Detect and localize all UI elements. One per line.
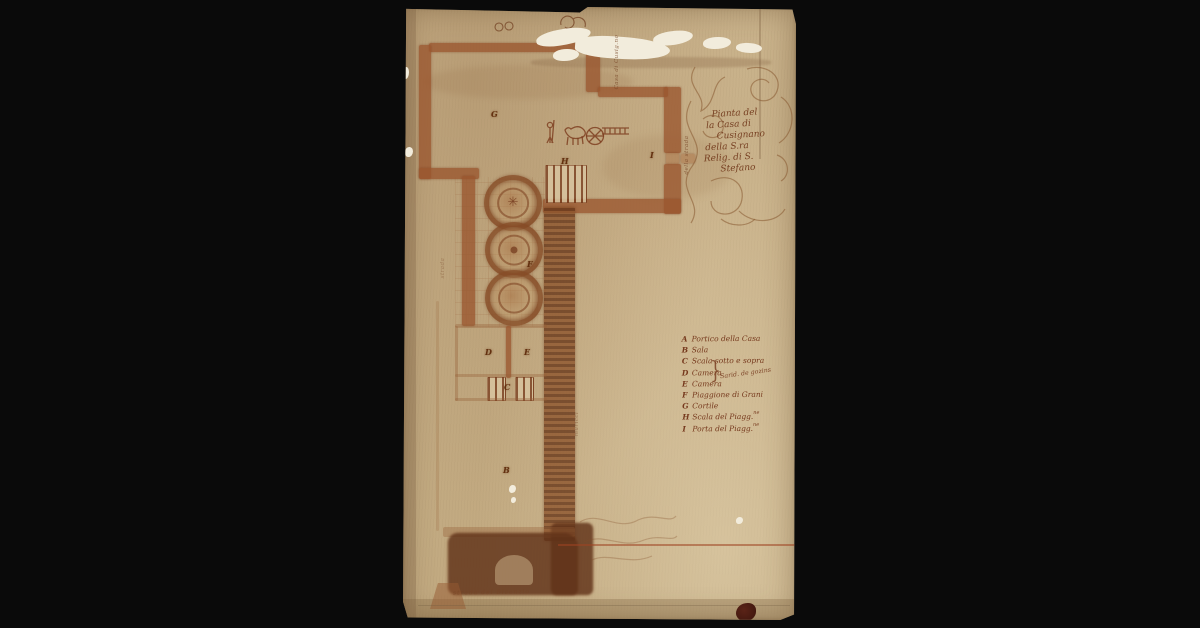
legend-text: Scala sotto e sopra (692, 355, 765, 367)
legend-letter: B (682, 345, 692, 356)
legend-letter: A (682, 333, 692, 344)
legend-letter: F (682, 389, 692, 400)
inscription-top-vertical: Casa di Cusig.no (614, 30, 620, 94)
corridor-band (544, 207, 575, 541)
legend-sup: ne (753, 411, 759, 422)
inscription-wall-vertical: della strada (684, 123, 690, 187)
inscription-corridor-vertical: muricci (574, 392, 580, 456)
damage-patch (703, 37, 731, 49)
wall-B-left (436, 301, 439, 531)
legend-text: Sala (692, 344, 709, 355)
wall-DE-divider (506, 326, 511, 378)
legend-letter: G (682, 401, 692, 412)
wall-DE-top (455, 324, 547, 328)
hub-dot (511, 247, 518, 254)
inscription-left-vertical: strada (440, 236, 446, 300)
scanned-drawing-stage: ✳ (0, 0, 1200, 628)
portico-arch (495, 555, 533, 585)
legend-text: Scala del Piagg. (692, 411, 753, 423)
plan-label-H: H (561, 156, 569, 166)
plan-label-C: C (504, 382, 510, 392)
pencil-line (418, 605, 790, 606)
legend-text: Portico della Casa (692, 333, 761, 345)
red-rule-line (558, 544, 796, 546)
wall-courtyard-left (419, 45, 431, 179)
damage-speck (509, 485, 516, 493)
plan-label-I: I (650, 150, 654, 160)
legend-sup: ne (753, 422, 759, 433)
legend-key: APortico della Casa BSala CScala sotto e… (682, 333, 797, 435)
stain-left-band (403, 7, 416, 620)
legend-letter: I (682, 423, 692, 434)
wall-top-right (598, 87, 668, 97)
legend-letter: C (682, 356, 692, 367)
legend-text: Piaggione di Grani (692, 389, 763, 401)
grain-circle-inner (498, 283, 530, 314)
damage-speck (511, 497, 516, 503)
wall-C-bottom (455, 398, 547, 401)
inscription-bottom: strada del Bisenzio (453, 588, 530, 596)
legend-letter: E (682, 378, 692, 389)
horse-cart-sketch (545, 117, 631, 153)
plan-label-F: F (527, 259, 533, 269)
damage-speck (736, 517, 743, 524)
plan-label-D: D (485, 347, 492, 357)
title-cartouche: Pianta del la Casa di Cusignano della S.… (701, 106, 796, 177)
legend-letter: H (682, 412, 692, 423)
damage-patch (652, 29, 693, 46)
rosette-icon: ✳ (508, 195, 519, 210)
plan-label-B: B (503, 465, 510, 475)
stair-H (545, 165, 587, 203)
door-I-gap (666, 153, 679, 164)
legend-text: Cortile (692, 400, 718, 411)
wall-DE-left (455, 326, 458, 401)
wall-right-upper (664, 87, 681, 153)
legend-letter: D (682, 367, 692, 378)
legend-text: Porta del Piagg. (692, 422, 753, 434)
legend-row: IPorta del Piagg.ne (682, 422, 796, 434)
grain-circle-3 (485, 270, 543, 326)
manuscript-sheet: ✳ (403, 7, 796, 620)
plan-label-E: E (524, 347, 530, 357)
plan-label-G: G (491, 109, 498, 119)
rubble-sketch (578, 462, 678, 577)
